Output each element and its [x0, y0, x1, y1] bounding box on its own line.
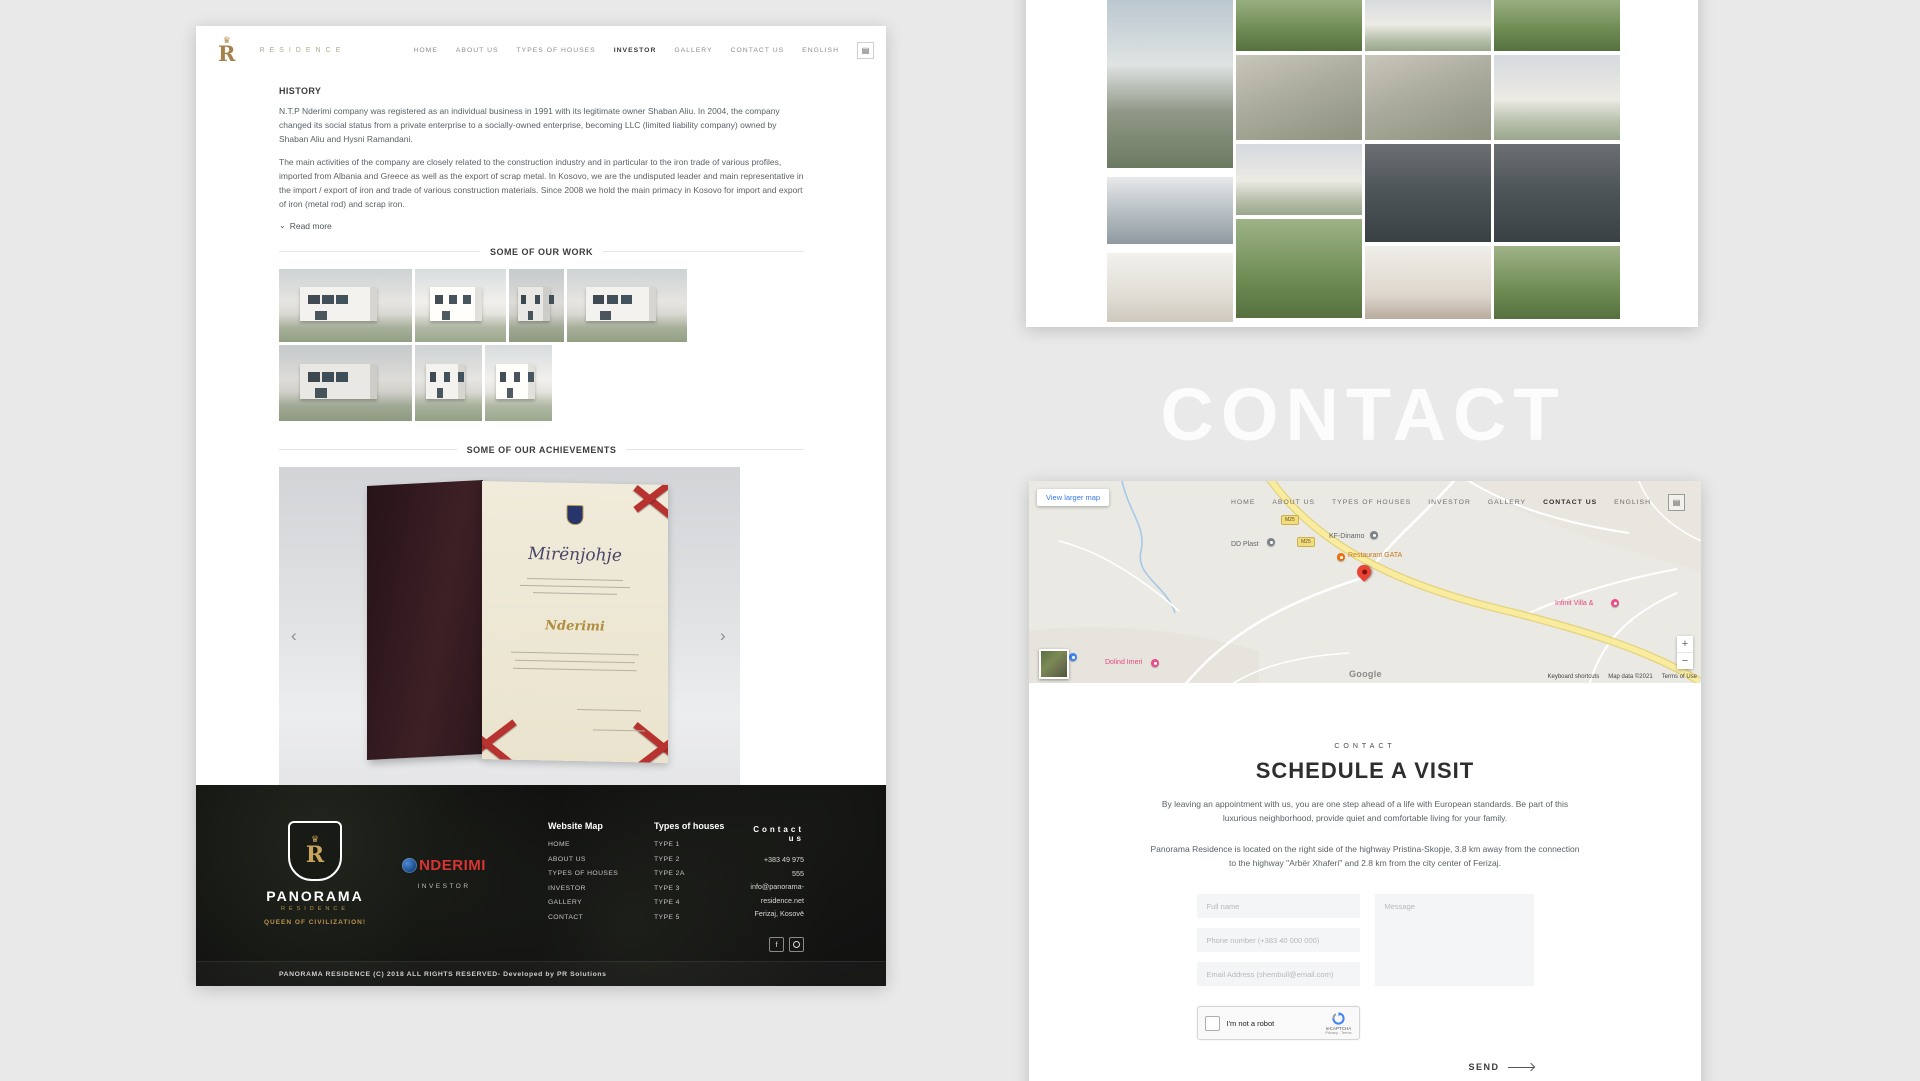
- footer-phone[interactable]: +383 49 975 555: [750, 853, 804, 880]
- recaptcha-label: I'm not a robot: [1227, 1019, 1275, 1028]
- gallery-photo[interactable]: [1365, 144, 1491, 242]
- recaptcha-logo: reCAPTCHA Privacy - Terms: [1325, 1012, 1351, 1035]
- nav-about-us[interactable]: ABOUT US: [456, 47, 499, 54]
- book-icon[interactable]: ▤: [1668, 494, 1685, 511]
- phone-field[interactable]: [1197, 928, 1360, 952]
- nav-types-of-houses[interactable]: TYPES OF HOUSES: [517, 47, 596, 54]
- logo-letter: R: [218, 44, 235, 64]
- map-data-text: Map data ©2021: [1608, 674, 1652, 680]
- carousel-prev-arrow[interactable]: ‹: [291, 627, 297, 644]
- gallery-photo[interactable]: [1494, 55, 1620, 140]
- zoom-out-button[interactable]: −: [1677, 652, 1693, 669]
- work-photo[interactable]: [415, 269, 506, 342]
- footer-social: f: [769, 937, 804, 952]
- nav-contact-us[interactable]: CONTACT US: [731, 47, 785, 54]
- footer-contact: Contact us +383 49 975 555 info@panorama…: [750, 825, 804, 921]
- google-map[interactable]: View larger map HOME ABOUT US TYPES OF H…: [1029, 481, 1701, 683]
- contact-paragraph-1: By leaving an appointment with us, you a…: [1150, 798, 1580, 825]
- book-icon[interactable]: ▤: [857, 42, 874, 59]
- certificate-signature: Nderimi: [482, 617, 668, 636]
- footer-link-type-1[interactable]: TYPE 1: [654, 838, 750, 853]
- terms-of-use-link[interactable]: Terms of Use: [1662, 674, 1697, 680]
- footer-link-types-of-houses[interactable]: TYPES OF HOUSES: [548, 867, 654, 882]
- satellite-toggle-thumbnail[interactable]: [1039, 649, 1069, 679]
- message-field[interactable]: [1375, 894, 1534, 986]
- gallery-photo[interactable]: [1107, 0, 1233, 168]
- gallery-photo[interactable]: [1236, 219, 1362, 318]
- site-footer: ♛ R PANORAMA RESIDENCE QUEEN OF CIVILIZA…: [196, 785, 886, 986]
- route-shield: M25: [1297, 537, 1315, 547]
- work-heading-text: SOME OF OUR WORK: [490, 247, 593, 257]
- certificate-title: Mirënjohje: [482, 543, 668, 567]
- page-content: HISTORY N.T.P Nderimi company was regist…: [196, 74, 886, 785]
- work-photo[interactable]: [415, 345, 482, 421]
- footer-link-type-2a[interactable]: TYPE 2A: [654, 867, 750, 882]
- footer-link-about-us[interactable]: ABOUT US: [548, 853, 654, 868]
- site-header: ♛ R RESIDENCE HOME ABOUT US TYPES OF HOU…: [196, 26, 886, 74]
- footer-types-of-houses: Types of houses TYPE 1 TYPE 2 TYPE 2A TY…: [654, 821, 750, 925]
- panorama-footer-logo: ♛ R PANORAMA RESIDENCE QUEEN OF CIVILIZA…: [254, 821, 376, 926]
- poi-pin-pink[interactable]: [1151, 659, 1159, 667]
- read-more-label: Read more: [290, 221, 332, 231]
- globe-icon: [402, 858, 417, 873]
- achievements-section-heading: SOME OF OUR ACHIEVEMENTS: [279, 445, 804, 455]
- footer-link-investor[interactable]: INVESTOR: [548, 882, 654, 897]
- certificate-page: Mirënjohje Nderimi: [482, 481, 668, 763]
- nderimi-name: NDERIMI: [419, 857, 486, 874]
- recaptcha-widget: I'm not a robot reCAPTCHA Privacy - Term…: [1197, 1006, 1360, 1040]
- poi-kf-dinamo[interactable]: KF-Dinamo: [1329, 533, 1364, 540]
- poi-pin-gray[interactable]: [1370, 531, 1378, 539]
- nav-investor[interactable]: INVESTOR: [614, 47, 657, 54]
- panorama-sub: RESIDENCE: [254, 906, 376, 912]
- nderimi-footer-logo: NDERIMI INVESTOR: [386, 857, 502, 890]
- contact-kicker: CONTACT: [1029, 743, 1701, 750]
- work-photo[interactable]: [509, 269, 564, 342]
- photo-grid: [1107, 0, 1620, 322]
- poi-pin-restaurant[interactable]: [1337, 553, 1345, 561]
- contact-watermark: CONTACT: [1100, 372, 1626, 457]
- nav-gallery[interactable]: GALLERY: [674, 47, 712, 54]
- route-shield: M25: [1281, 515, 1299, 525]
- send-label: SEND: [1468, 1062, 1499, 1072]
- desktop-canvas: ♛ R RESIDENCE HOME ABOUT US TYPES OF HOU…: [0, 0, 1920, 1081]
- send-button[interactable]: SEND: [1197, 1062, 1534, 1072]
- footer-email[interactable]: info@panorama-residence.net: [750, 880, 804, 907]
- main-nav-overlay: HOME ABOUT US TYPES OF HOUSES INVESTOR G…: [1231, 494, 1685, 511]
- panorama-name: PANORAMA: [254, 888, 376, 904]
- poi-pin-blue[interactable]: [1069, 653, 1077, 661]
- footer-website-map: Website Map HOME ABOUT US TYPES OF HOUSE…: [548, 821, 654, 925]
- nav-investor[interactable]: INVESTOR: [1428, 499, 1471, 506]
- footer-link-type-2[interactable]: TYPE 2: [654, 853, 750, 868]
- gallery-photo[interactable]: [1236, 144, 1362, 215]
- map-art: [1029, 481, 1701, 683]
- poi-infinit-villa[interactable]: Infinit Villa &: [1555, 600, 1593, 607]
- contact-form: I'm not a robot reCAPTCHA Privacy - Term…: [1197, 894, 1534, 1040]
- work-section-heading: SOME OF OUR WORK: [279, 247, 804, 257]
- gallery-photo[interactable]: [1107, 253, 1233, 322]
- gallery-photo[interactable]: [1365, 0, 1491, 51]
- recaptcha-privacy-terms[interactable]: Privacy - Terms: [1325, 1031, 1351, 1035]
- nav-gallery[interactable]: GALLERY: [1488, 499, 1526, 506]
- map-attribution: Keyboard shortcuts Map data ©2021 Terms …: [1548, 674, 1698, 680]
- nav-language[interactable]: ENGLISH: [802, 47, 839, 54]
- nav-about-us[interactable]: ABOUT US: [1272, 499, 1315, 506]
- shield-letter: R: [306, 844, 324, 866]
- types-heading: Types of houses: [654, 821, 750, 831]
- work-gallery: [279, 269, 804, 421]
- poi-dd-plast[interactable]: DD Plast: [1231, 541, 1259, 548]
- gallery-photo[interactable]: [1107, 177, 1233, 244]
- history-paragraph-1: N.T.P Nderimi company was registered as …: [279, 104, 804, 146]
- recaptcha-checkbox[interactable]: [1205, 1016, 1220, 1031]
- footer-link-home[interactable]: HOME: [548, 838, 654, 853]
- history-paragraph-2: The main activities of the company are c…: [279, 155, 804, 211]
- work-photo[interactable]: [279, 345, 412, 421]
- carousel-next-arrow[interactable]: ›: [720, 627, 726, 644]
- copyright-text: PANORAMA RESIDENCE (C) 2018 ALL RIGHTS R…: [279, 971, 607, 978]
- full-name-field[interactable]: [1197, 894, 1360, 918]
- panorama-tagline: QUEEN OF CIVILIZATION!: [254, 919, 376, 926]
- gallery-photo[interactable]: [1236, 55, 1362, 140]
- website-map-heading: Website Map: [548, 821, 654, 831]
- panorama-shield-icon: ♛ R: [288, 821, 342, 881]
- logo-mark: ♛ R: [218, 37, 235, 64]
- keyboard-shortcuts-link[interactable]: Keyboard shortcuts: [1548, 674, 1600, 680]
- poi-pin-pink[interactable]: [1611, 599, 1619, 607]
- logo-wordmark: RESIDENCE: [259, 47, 345, 54]
- achievements-heading-text: SOME OF OUR ACHIEVEMENTS: [467, 445, 617, 455]
- map-zoom-controls: + −: [1677, 636, 1693, 669]
- schedule-visit-section: CONTACT SCHEDULE A VISIT By leaving an a…: [1029, 743, 1701, 1072]
- contact-page-card: View larger map HOME ABOUT US TYPES OF H…: [1029, 481, 1701, 1081]
- work-photo[interactable]: [279, 269, 412, 342]
- view-larger-map-button[interactable]: View larger map: [1037, 489, 1109, 506]
- site-logo[interactable]: ♛ R RESIDENCE: [218, 37, 345, 64]
- gallery-photo[interactable]: [1236, 0, 1362, 51]
- gallery-photo[interactable]: [1494, 246, 1620, 319]
- zoom-in-button[interactable]: +: [1677, 636, 1693, 652]
- google-logo: Google: [1349, 669, 1382, 679]
- schedule-visit-title: SCHEDULE A VISIT: [1029, 758, 1701, 784]
- contact-us-heading: Contact us: [750, 825, 804, 843]
- footer-link-contact[interactable]: CONTACT: [548, 911, 654, 926]
- nav-language[interactable]: ENGLISH: [1614, 499, 1651, 506]
- nav-types-of-houses[interactable]: TYPES OF HOUSES: [1332, 499, 1411, 506]
- gallery-photo[interactable]: [1365, 55, 1491, 140]
- recaptcha-icon: [1332, 1012, 1345, 1025]
- footer-link-gallery[interactable]: GALLERY: [548, 896, 654, 911]
- coat-of-arms-icon: [567, 504, 584, 524]
- investor-page-card: ♛ R RESIDENCE HOME ABOUT US TYPES OF HOU…: [196, 26, 886, 986]
- email-field[interactable]: [1197, 962, 1360, 986]
- footer-link-type-4[interactable]: TYPE 4: [654, 896, 750, 911]
- poi-restaurant-gata[interactable]: Restaurant GATA: [1348, 552, 1402, 559]
- achievements-carousel: Mirënjohje Nderimi ‹ ›: [279, 467, 740, 786]
- contact-paragraph-2: Panorama Residence is located on the rig…: [1150, 843, 1580, 870]
- gallery-photo[interactable]: [1365, 246, 1491, 319]
- work-photo[interactable]: [485, 345, 552, 421]
- chevron-down-icon: ⌄: [279, 222, 286, 230]
- facebook-icon[interactable]: f: [769, 937, 784, 952]
- instagram-icon[interactable]: [789, 937, 804, 952]
- footer-link-type-5[interactable]: TYPE 5: [654, 911, 750, 926]
- nav-contact-us[interactable]: CONTACT US: [1543, 499, 1597, 506]
- gallery-photo[interactable]: [1494, 144, 1620, 242]
- certificate-folder-cover: [367, 479, 483, 759]
- main-nav: HOME ABOUT US TYPES OF HOUSES INVESTOR G…: [413, 42, 874, 59]
- poi-pin-gray[interactable]: [1267, 538, 1275, 546]
- gallery-page-card: [1026, 0, 1698, 327]
- work-photo[interactable]: [567, 269, 687, 342]
- poi-dolind-imeri[interactable]: Dolind Imeri: [1105, 659, 1142, 666]
- nav-home[interactable]: HOME: [1231, 499, 1255, 506]
- footer-location: Ferizaj, Kosovë: [750, 907, 804, 921]
- nav-home[interactable]: HOME: [413, 47, 437, 54]
- history-heading: HISTORY: [279, 86, 804, 96]
- nderimi-label: INVESTOR: [386, 883, 502, 890]
- gallery-photo[interactable]: [1494, 0, 1620, 51]
- footer-link-type-3[interactable]: TYPE 3: [654, 882, 750, 897]
- arrow-right-icon: [1508, 1067, 1534, 1068]
- read-more-link[interactable]: ⌄ Read more: [279, 221, 804, 231]
- footer-copyright-bar: PANORAMA RESIDENCE (C) 2018 ALL RIGHTS R…: [196, 961, 886, 987]
